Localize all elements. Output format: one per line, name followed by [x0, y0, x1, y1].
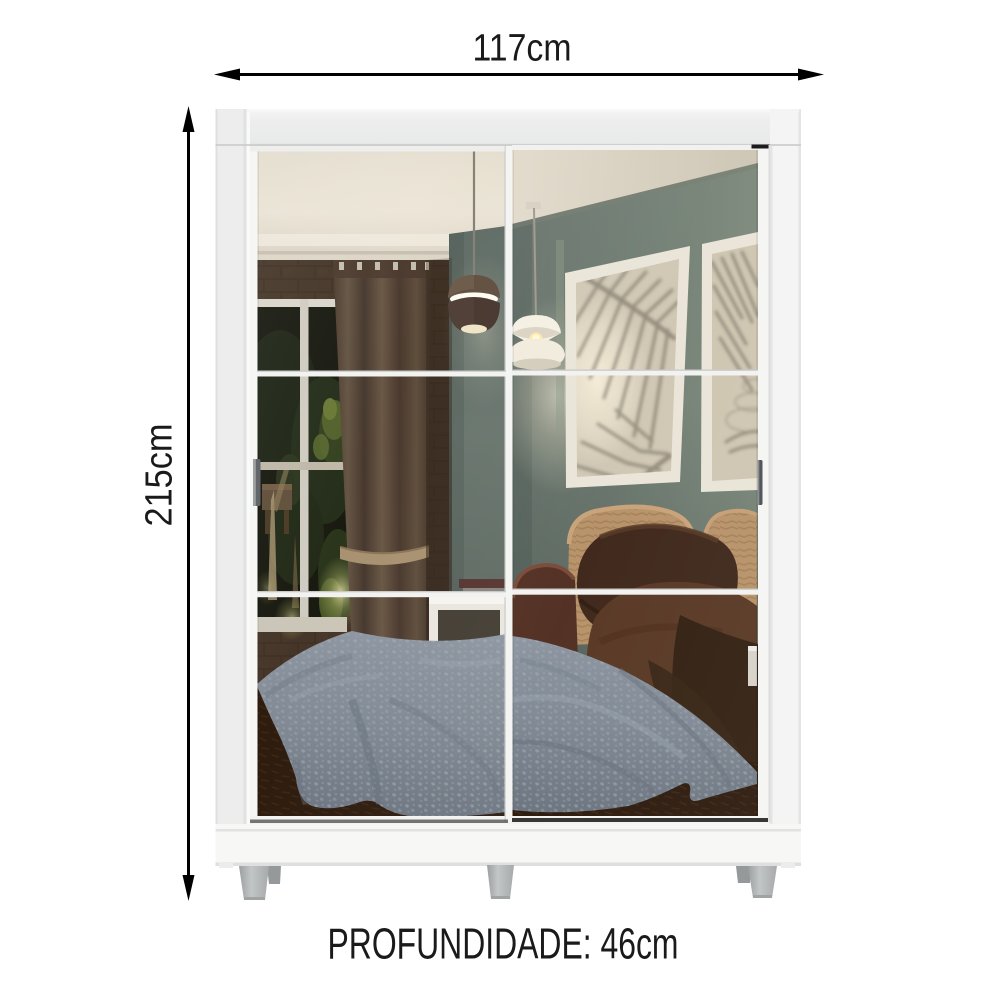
svg-text:PROFUNDIDADE: 46cm: PROFUNDIDADE: 46cm: [328, 921, 679, 969]
svg-text:215cm: 215cm: [139, 424, 181, 527]
svg-text:117cm: 117cm: [473, 28, 572, 70]
